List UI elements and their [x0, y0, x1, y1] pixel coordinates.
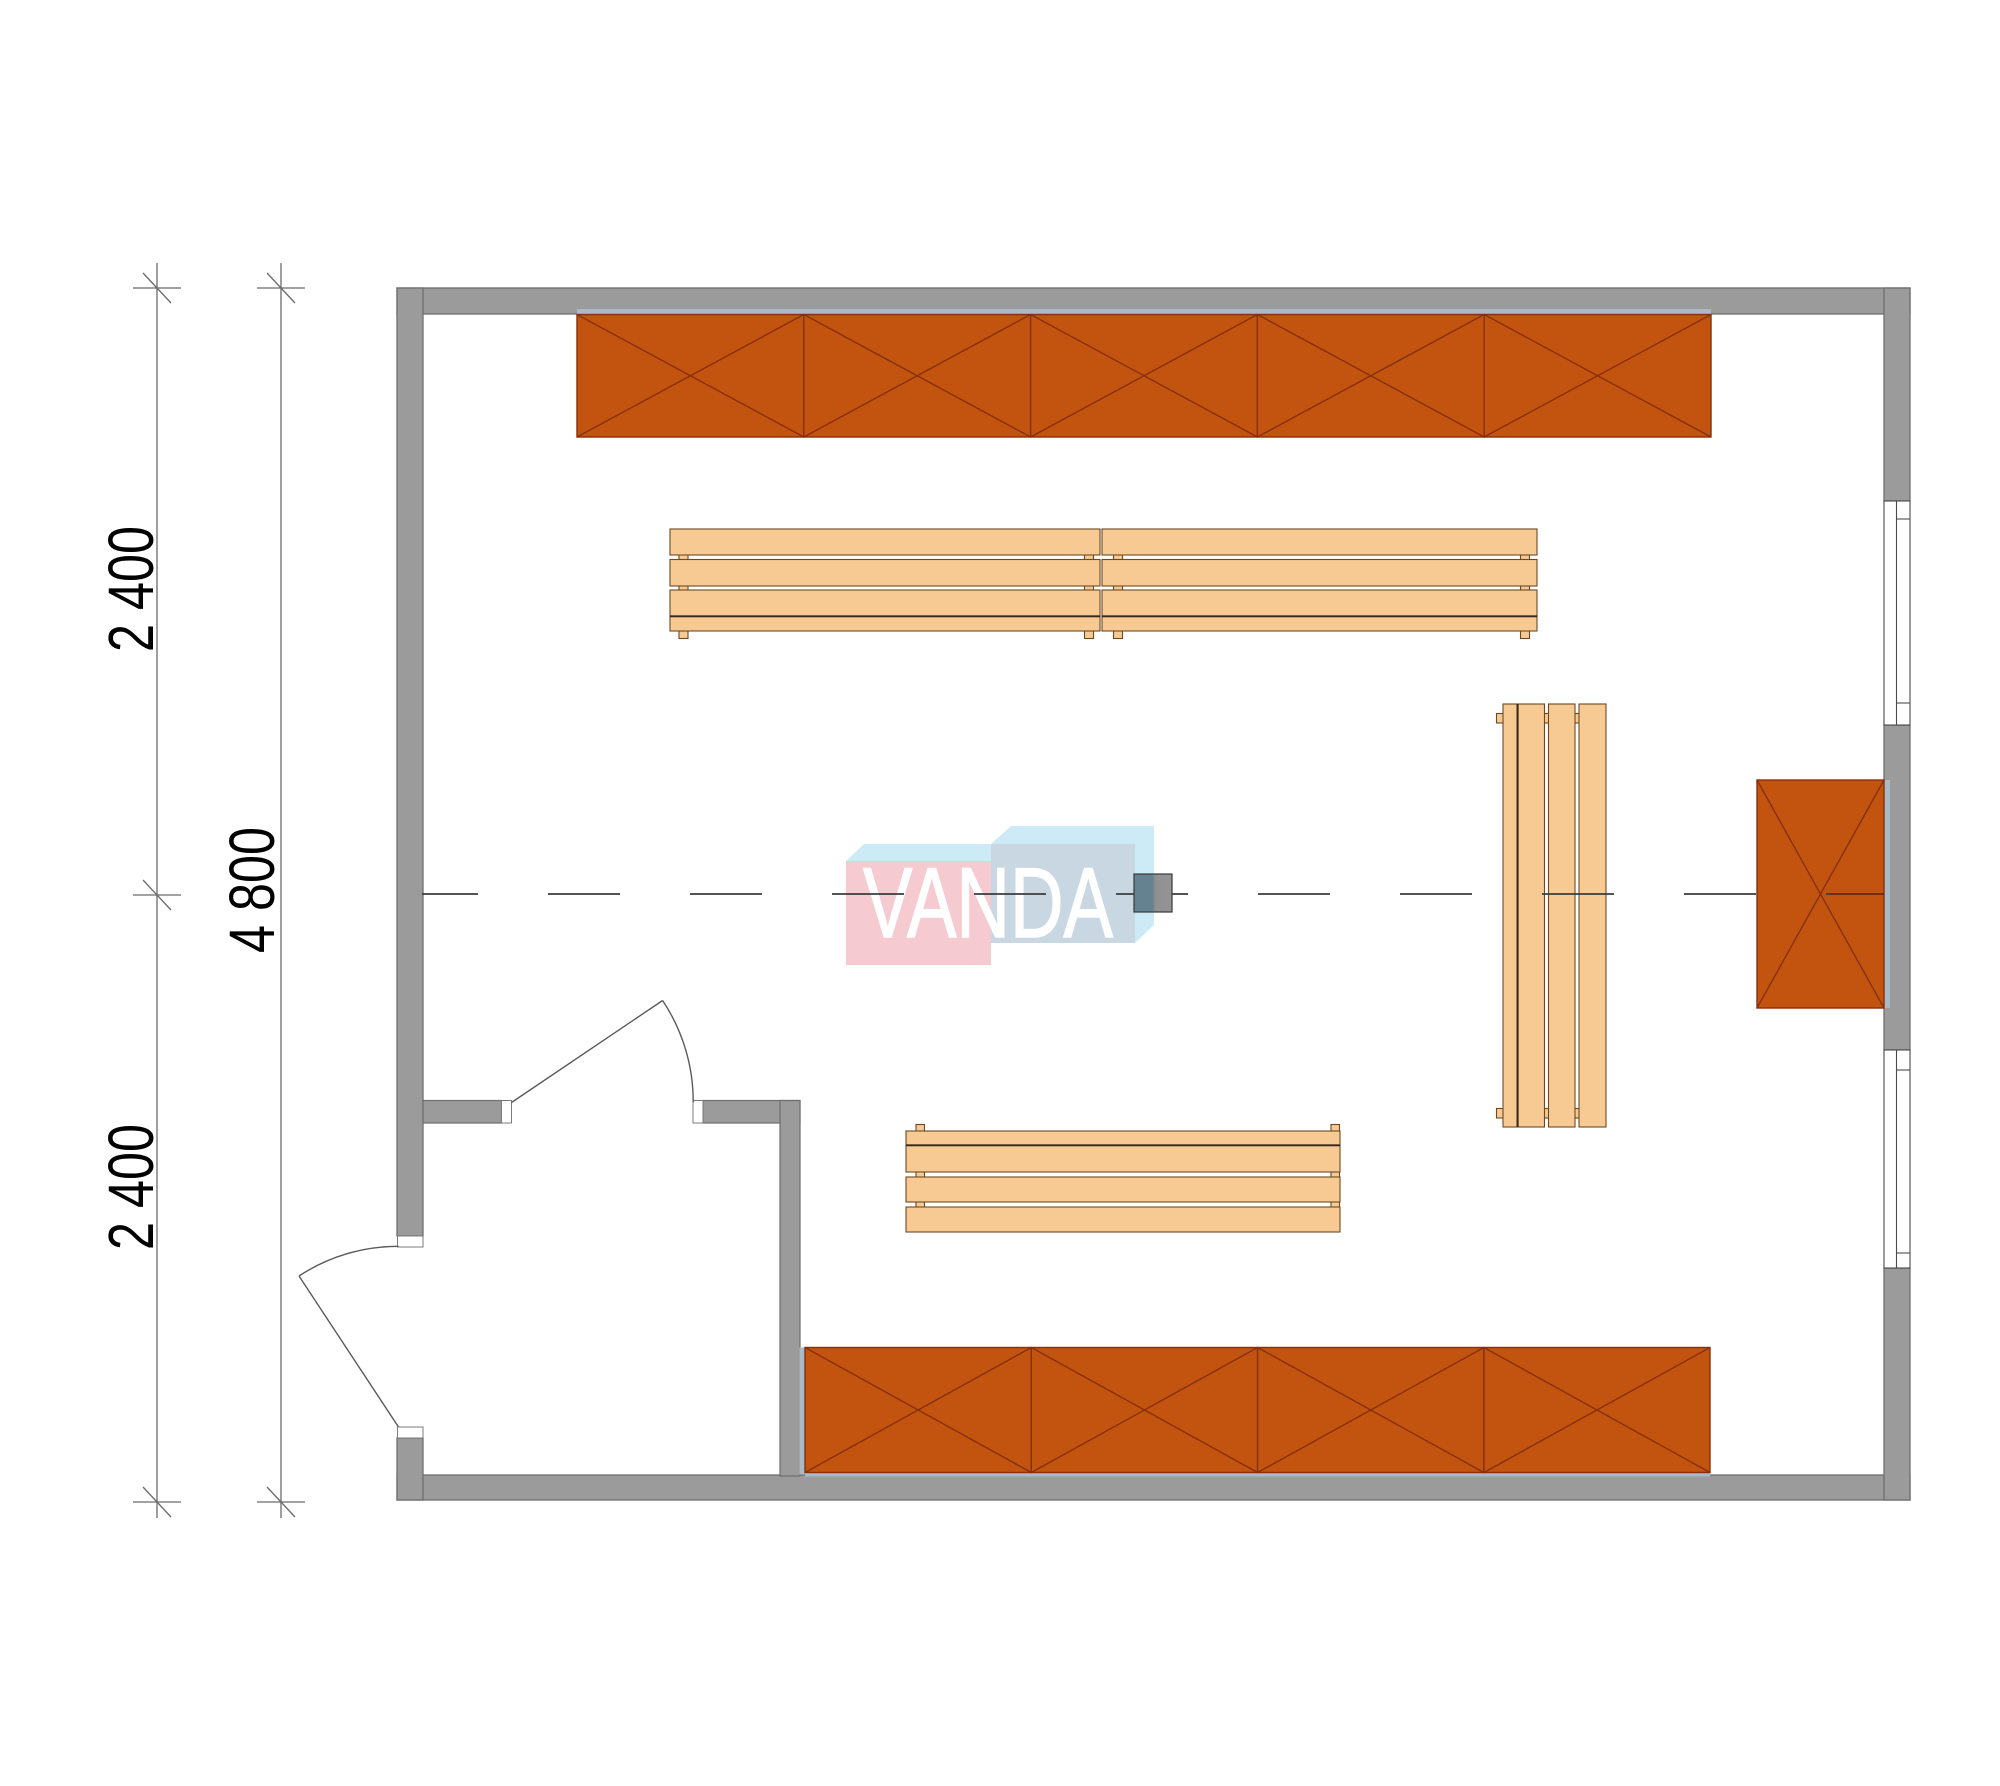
svg-text:4 800: 4 800 [216, 827, 288, 953]
svg-text:VANDA: VANDA [863, 847, 1113, 958]
svg-text:2 400: 2 400 [95, 526, 167, 652]
svg-text:2 400: 2 400 [95, 1124, 167, 1250]
